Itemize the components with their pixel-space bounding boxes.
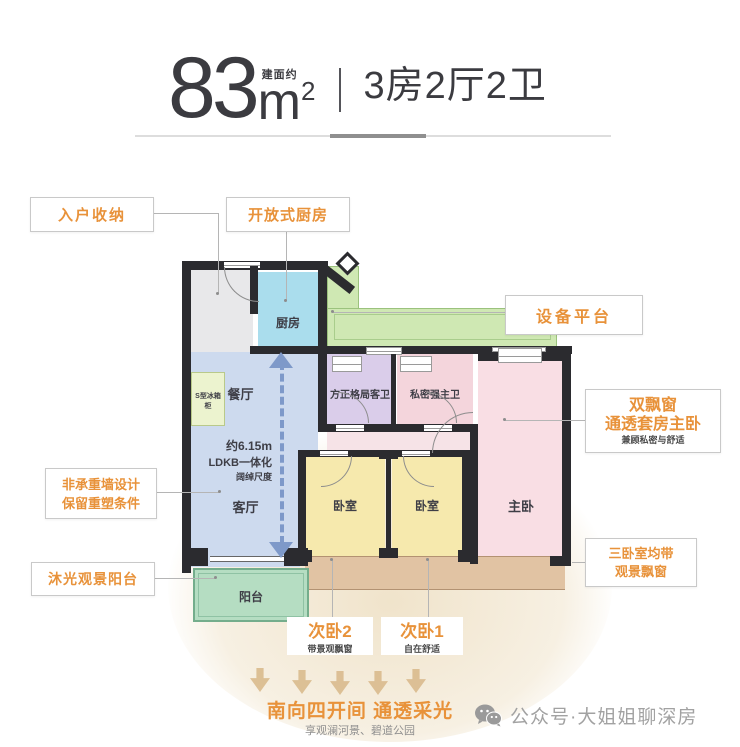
dimension-line1: 约6.15m [160, 437, 272, 454]
connector-dot-kitchen [284, 299, 287, 302]
guest-bath-fixture [332, 356, 362, 372]
area-unit: m [258, 76, 301, 128]
layout-type: 3房2厅2卫 [363, 64, 546, 108]
room-label-fridge: S型冰箱柜 [192, 391, 224, 411]
callout-bay-windows-line2: 观景飘窗 [586, 563, 696, 581]
master-bath-fixture [400, 356, 432, 372]
room-label-guest-bathroom: 方正格局客卫 [327, 386, 393, 401]
header-rule-accent [330, 134, 426, 138]
connector-entry-storage-h [152, 213, 218, 214]
callout-wall-design-line1: 非承重墙设计 [46, 475, 156, 494]
header-divider [339, 68, 341, 112]
area-unit-group: 建面约 m 2 [258, 66, 316, 128]
callout-open-kitchen: 开放式厨房 [226, 197, 350, 232]
wall-bay-stub-2 [458, 550, 474, 562]
connector-dot-platform [331, 310, 334, 313]
wall-bath-left [318, 352, 327, 430]
connector-bedroom1 [428, 560, 429, 618]
wall-left [182, 261, 191, 573]
connector-open-kitchen [286, 230, 287, 300]
connector-bedroom2 [332, 560, 333, 618]
wall-right [562, 352, 571, 566]
callout-entry-storage-label: 入户收纳 [31, 204, 153, 225]
callout-wall-design: 非承重墙设计 保留重塑条件 [45, 468, 157, 519]
callout-bedroom1: 次卧1 自在舒适 [381, 617, 463, 655]
wechat-icon [474, 704, 502, 728]
room-balcony: 阳台 [193, 568, 309, 622]
footer-subline: 享观澜河景、碧道公园 [220, 722, 500, 738]
master-top-bay-window [498, 348, 542, 363]
callout-bedroom2-title: 次卧2 [287, 617, 373, 642]
callout-bay-windows-line1: 三卧室均带 [586, 545, 696, 563]
wall-bedroom1-right [462, 455, 471, 558]
area-superscript: 2 [301, 78, 315, 104]
callout-bedroom1-title: 次卧1 [381, 617, 463, 642]
wall-bay-stub-3 [550, 556, 566, 566]
connector-balcony [153, 578, 215, 579]
connector-entry-storage-v [218, 213, 219, 293]
callout-master-suite: 双飘窗 通透套房主卧 兼顾私密与舒适 [585, 389, 721, 453]
header: 83 建面约 m 2 3房2厅2卫 [168, 48, 547, 128]
callout-bay-windows: 三卧室均带 观景飘窗 [585, 538, 697, 587]
callout-master-suite-line2: 通透套房主卧 [586, 415, 720, 434]
wall-divider-cap-top [379, 453, 398, 459]
wall-bay-stub-1 [298, 550, 312, 562]
guest-bath-door-gap [336, 425, 364, 431]
callout-bedroom1-sub: 自在舒适 [381, 642, 463, 655]
callout-master-suite-line1: 双飘窗 [586, 396, 720, 415]
callout-master-suite-sub: 兼顾私密与舒适 [586, 434, 720, 447]
callout-open-kitchen-label: 开放式厨房 [227, 204, 349, 225]
wall-kitchen-right [318, 268, 327, 350]
callout-light-balcony-label: 沐光观景阳台 [32, 569, 154, 589]
wall-balcony-left-stub [182, 548, 208, 566]
window-mid-1 [366, 347, 402, 355]
callout-equipment-platform: 设备平台 [505, 295, 643, 335]
dimension-dashed-line [280, 362, 284, 544]
connector-dot-wall-design [218, 490, 221, 493]
callout-light-balcony: 沐光观景阳台 [31, 562, 155, 596]
room-label-master-bedroom: 主卧 [478, 496, 564, 515]
connector-equipment-platform [333, 312, 505, 313]
room-label-bedroom-2: 卧室 [305, 497, 385, 514]
wall-bedroom2-left [298, 455, 306, 563]
footer-headline: 南向四开间 通透采光 [200, 696, 520, 723]
wall-bedroom-divider [386, 455, 391, 555]
wall-divider-cap-bottom [379, 548, 398, 558]
room-kitchen: 厨房 [258, 272, 318, 350]
connector-bay-windows [572, 562, 586, 563]
room-label-bedroom-1: 卧室 [392, 497, 462, 514]
watermark: 公众号·大姐姐聊深房 [474, 702, 697, 729]
balcony-inner-line [198, 573, 304, 617]
bay-window-strip [305, 556, 565, 590]
room-label-kitchen: 厨房 [258, 314, 318, 331]
connector-dot-entry [216, 292, 219, 295]
wall-master-top-left [478, 352, 498, 361]
callout-bedroom2-sub: 带景观飘窗 [287, 642, 373, 655]
floorplan-infographic: 83 建面约 m 2 3房2厅2卫 厨房 餐厅 客厅 S型冰箱柜 方正格局客卫 … [0, 0, 740, 747]
callout-bedroom2: 次卧2 带景观飘窗 [287, 617, 373, 655]
dimension-arrowhead-down [269, 542, 293, 558]
connector-dot-bedroom2 [330, 558, 333, 561]
connector-dot-master [503, 418, 506, 421]
wall-bath-divider [391, 354, 396, 426]
connector-master-suite [505, 420, 585, 421]
dimension-line3: 阔绰尺度 [160, 470, 272, 483]
room-master-bedroom: 主卧 [478, 358, 564, 563]
callout-wall-design-line2: 保留重塑条件 [46, 494, 156, 513]
connector-wall-design [155, 492, 219, 493]
area-value: 83 [168, 48, 256, 128]
connector-dot-balcony [214, 576, 217, 579]
watermark-text: 公众号·大姐姐聊深房 [510, 702, 697, 729]
dimension-line2: LDKB一体化 [160, 454, 272, 470]
connector-dot-bedroom1 [426, 558, 429, 561]
callout-entry-storage: 入户收纳 [30, 197, 154, 232]
callout-equipment-platform-label: 设备平台 [506, 303, 642, 327]
room-fridge-cabinet: S型冰箱柜 [191, 372, 225, 426]
dimension-annotation: 约6.15m LDKB一体化 阔绰尺度 [160, 437, 272, 483]
